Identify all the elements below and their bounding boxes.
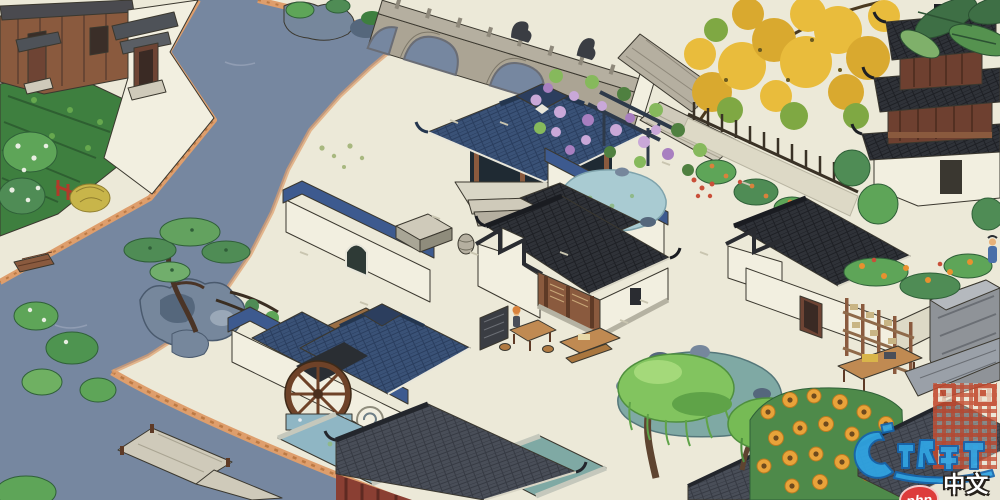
qr-finder-icon [934,384,956,406]
stone-urn[interactable] [458,234,474,254]
game-viewport[interactable]: php 中文网 [0,0,1000,500]
site-name-text: 中文网 [943,467,1000,500]
qr-finder-icon [974,384,996,406]
haystack[interactable] [70,184,110,212]
villager-at-table[interactable] [513,306,521,327]
php-logo: php [898,483,940,500]
php-cn-watermark: php 中文网 [899,467,1000,500]
